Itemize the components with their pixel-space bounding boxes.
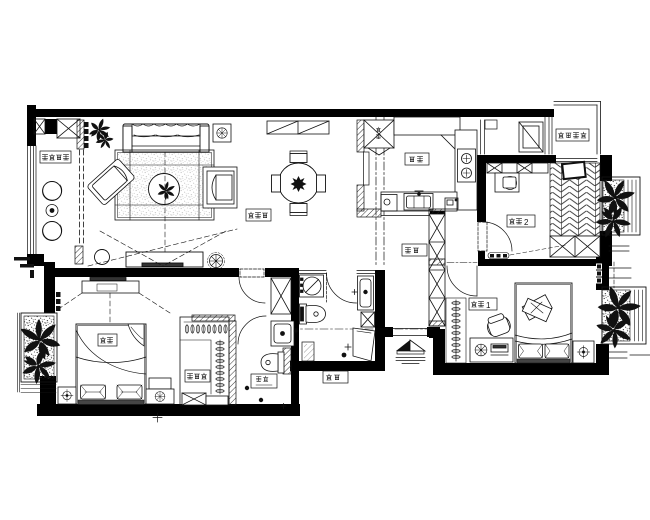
- svg-text:2: 2: [524, 218, 529, 227]
- svg-text:1: 1: [486, 301, 491, 310]
